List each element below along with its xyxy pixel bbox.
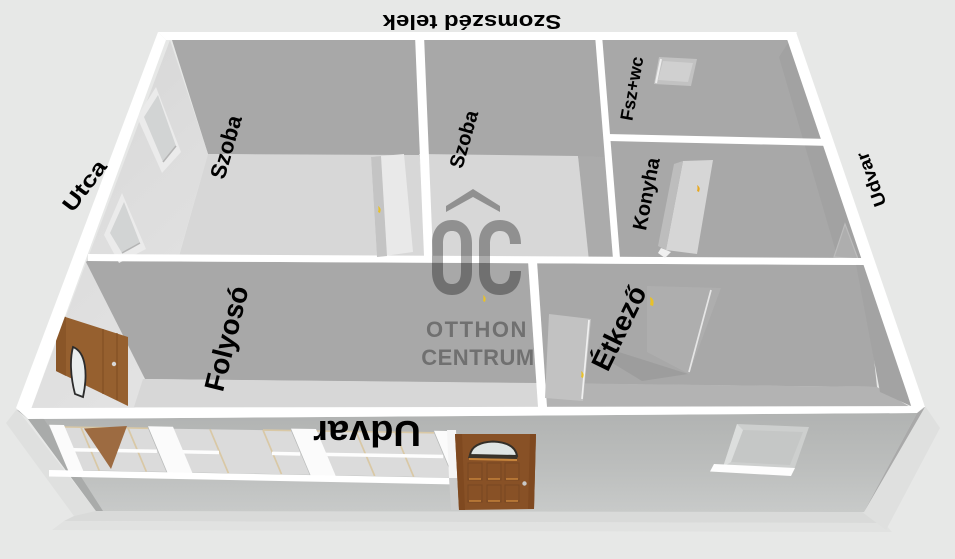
svg-text:OTTHON: OTTHON: [426, 317, 528, 342]
svg-text:Udvar: Udvar: [313, 413, 421, 454]
svg-text:CENTRUM: CENTRUM: [421, 345, 535, 370]
svg-text:Szomszéd telek: Szomszéd telek: [382, 11, 561, 34]
